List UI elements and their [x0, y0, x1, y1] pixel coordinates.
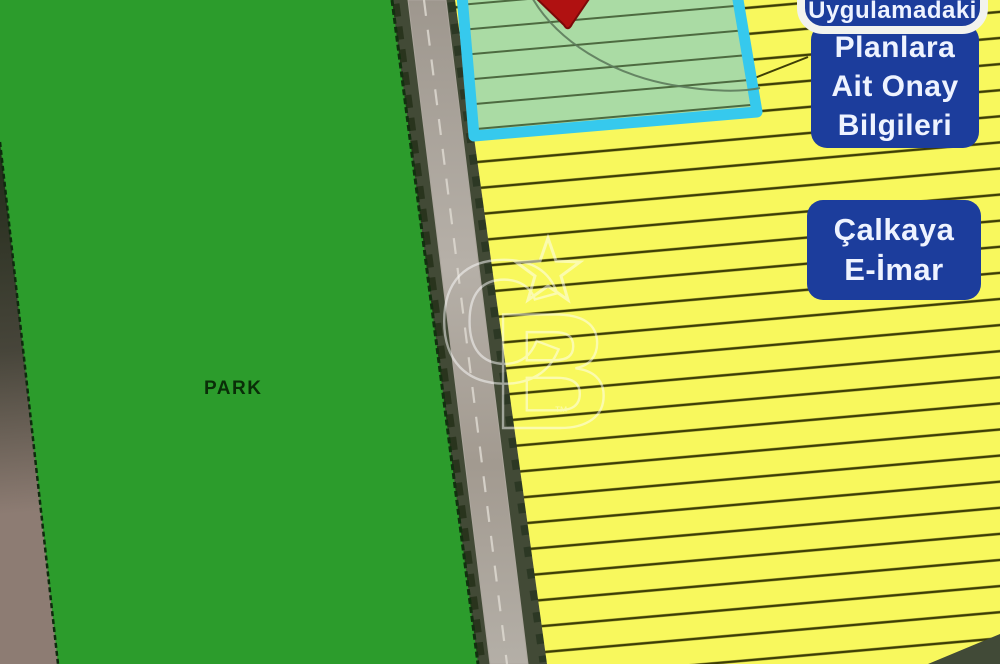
watermark-letter-b: B [492, 279, 611, 463]
zoning-plan-image: PARK C B ™ Uygulamadaki Planlara Ait Ona… [0, 0, 1000, 664]
badge-eimar: Çalkaya E-İmar [807, 200, 981, 300]
badge-plan-approval-line2: Ait Onay [831, 67, 958, 106]
badge-plan-approval-line3: Bilgileri [838, 106, 953, 145]
plan-area [461, 0, 757, 136]
badge-plan-approval-top-label: Uygulamadaki [808, 0, 977, 23]
park-label: PARK [204, 378, 262, 399]
watermark-tm: ™ [554, 403, 568, 419]
badge-plan-approval: Planlara Ait Onay Bilgileri [811, 24, 979, 148]
badge-eimar-line1: Çalkaya [834, 210, 955, 250]
badge-eimar-line2: E-İmar [844, 250, 943, 290]
badge-plan-approval-top: Uygulamadaki [797, 0, 988, 34]
